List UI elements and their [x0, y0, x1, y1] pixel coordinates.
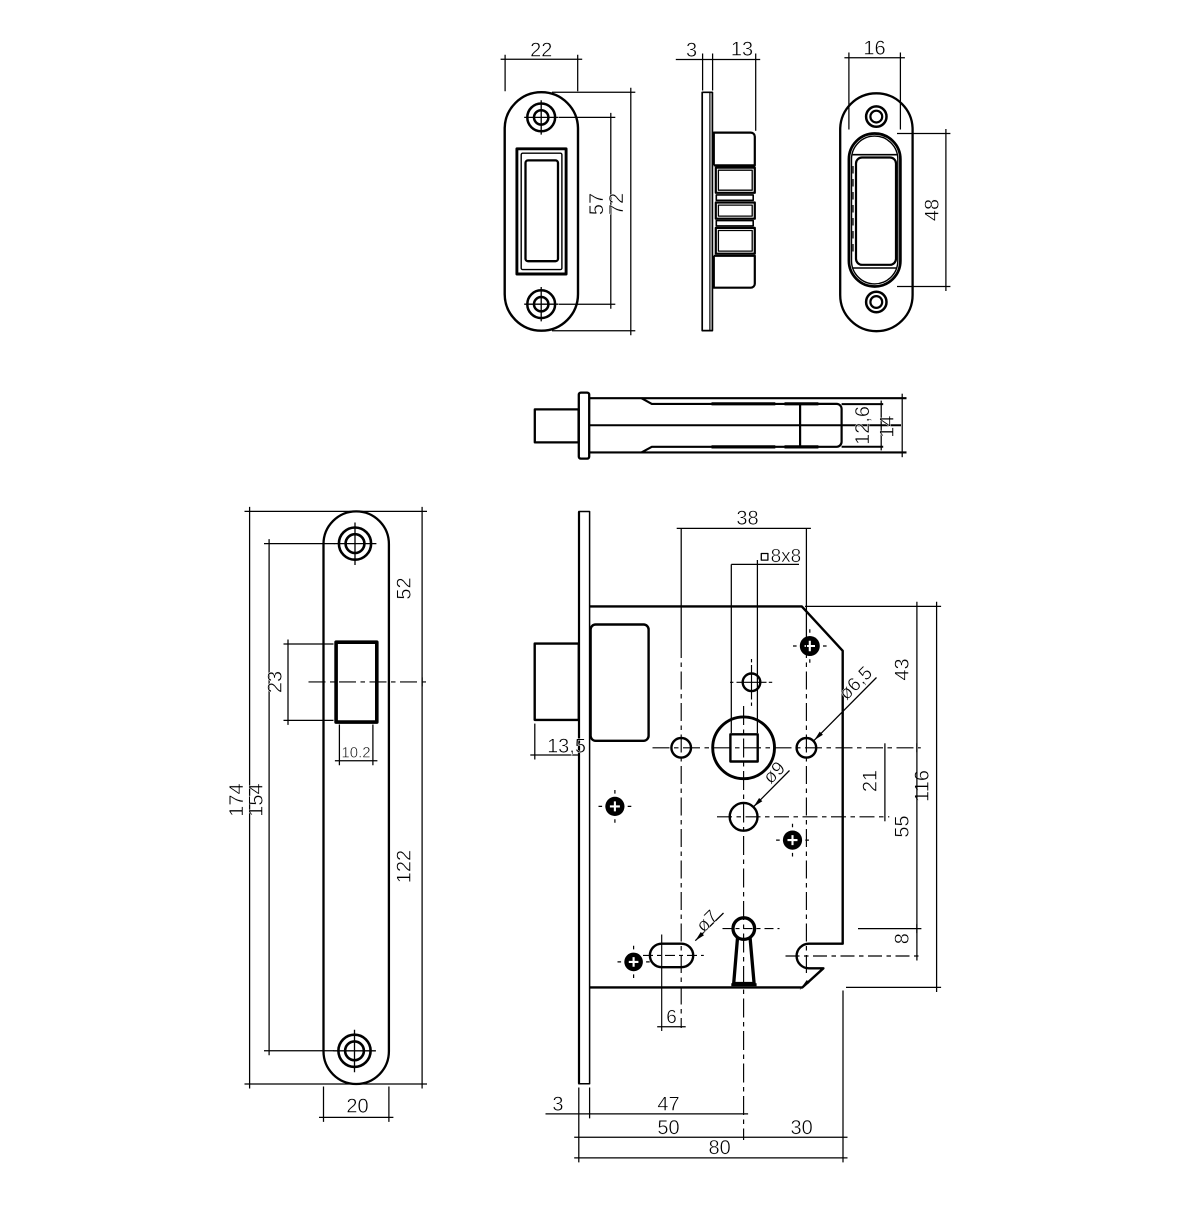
svg-text:116: 116	[912, 770, 934, 802]
svg-text:50: 50	[657, 1117, 679, 1139]
svg-text:10.2: 10.2	[341, 744, 370, 761]
svg-text:52: 52	[394, 577, 416, 599]
svg-text:55: 55	[891, 815, 913, 837]
svg-text:14: 14	[877, 415, 899, 437]
svg-text:21: 21	[859, 770, 881, 792]
svg-text:3: 3	[552, 1093, 563, 1115]
svg-text:57: 57	[586, 193, 608, 215]
svg-text:80: 80	[708, 1137, 730, 1159]
svg-text:38: 38	[736, 508, 758, 530]
svg-text:16: 16	[863, 38, 885, 60]
svg-text:3: 3	[686, 40, 697, 62]
svg-text:13,5: 13,5	[547, 736, 586, 758]
svg-text:13: 13	[731, 39, 753, 61]
svg-text:22: 22	[530, 39, 552, 61]
svg-text:20: 20	[346, 1095, 368, 1117]
svg-text:43: 43	[891, 658, 913, 680]
svg-text:48: 48	[921, 199, 943, 221]
svg-text:8: 8	[891, 933, 913, 944]
svg-text:72: 72	[606, 193, 628, 215]
svg-text:122: 122	[394, 850, 416, 883]
svg-text:47: 47	[657, 1093, 679, 1115]
svg-text:12,6: 12,6	[852, 406, 874, 445]
svg-text:154: 154	[246, 783, 268, 816]
svg-text:6: 6	[666, 1007, 677, 1028]
svg-text:30: 30	[790, 1117, 812, 1139]
svg-text:23: 23	[265, 671, 287, 693]
svg-text:8x8: 8x8	[771, 546, 802, 567]
